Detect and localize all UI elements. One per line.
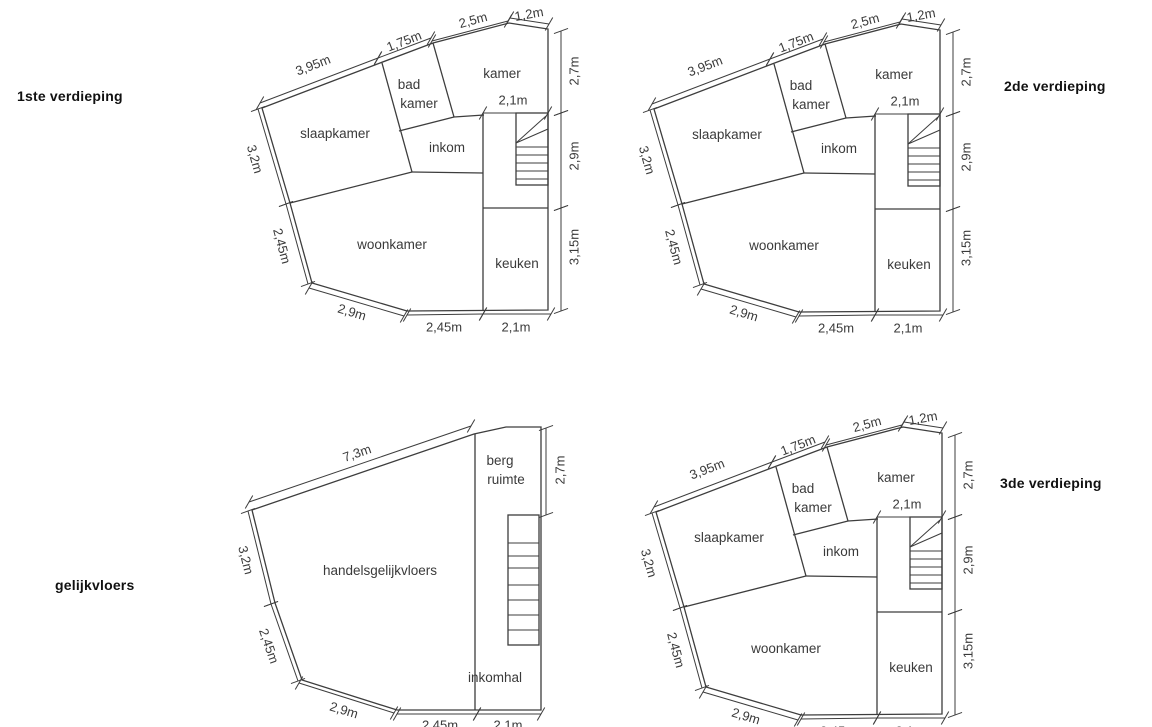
room-label: kamer xyxy=(875,67,913,82)
dimension-label: 2,45m xyxy=(256,626,282,665)
interior-wall xyxy=(290,172,412,203)
interior-wall xyxy=(806,576,877,577)
dimension: 3,2m xyxy=(636,107,685,207)
dimension: 7,3m xyxy=(245,420,475,509)
staircase xyxy=(508,515,539,645)
room-label: bad xyxy=(790,78,813,93)
staircase xyxy=(516,113,548,185)
dimension-tick xyxy=(467,420,475,433)
dimension-label: 2,1m xyxy=(494,718,523,727)
room-label: slaapkamer xyxy=(692,127,762,142)
dimension-label: 3,2m xyxy=(636,144,658,176)
floorplan-3de-verdieping: 3,95m1,75m2,5m1,2m2,7m2,9m3,15m2,1m2,45m… xyxy=(638,408,976,727)
dimension-label: 2,1m xyxy=(893,497,922,512)
staircase xyxy=(908,114,940,186)
dimension: 3,95m xyxy=(256,52,382,110)
dimension-label: 3,95m xyxy=(687,456,726,483)
dimension: 3,95m xyxy=(650,456,776,514)
interior-wall xyxy=(848,519,878,521)
room-label: berg xyxy=(486,453,513,468)
interior-wall xyxy=(791,118,846,132)
dimension: 3,15m xyxy=(946,206,974,314)
dimension-label: 3,15m xyxy=(961,633,976,669)
floor-label-1ste-verdieping: 1ste verdieping xyxy=(17,88,123,104)
dimension-line xyxy=(249,426,471,502)
dimension-label: 3,2m xyxy=(638,547,660,579)
dimension-label: 3,15m xyxy=(959,230,974,266)
dimension-label: 2,7m xyxy=(567,57,582,86)
dimension-label: 2,1m xyxy=(502,320,531,335)
stair-direction-line xyxy=(516,116,546,143)
room-label: inkom xyxy=(823,544,859,559)
dimension-label: 1,75m xyxy=(778,432,817,459)
dimension-label: 1,2m xyxy=(905,5,936,25)
dimension-label: 2,1m xyxy=(894,321,923,336)
stair-direction-line xyxy=(908,117,938,144)
interior-wall xyxy=(454,115,484,117)
dimension: 3,15m xyxy=(554,205,582,313)
dimension: 2,7m xyxy=(948,432,976,519)
interior-wall xyxy=(804,173,875,174)
dimension-tick xyxy=(245,496,253,509)
stair-direction-line xyxy=(908,130,940,144)
interior-wall xyxy=(399,117,454,131)
dimension: 2,7m xyxy=(946,29,974,116)
dimension-label: 2,45m xyxy=(662,228,686,267)
room-label: inkom xyxy=(821,141,857,156)
room-label: bad xyxy=(398,77,421,92)
dimension-label: 2,7m xyxy=(553,456,568,485)
dimension-label: 1,75m xyxy=(776,29,815,56)
dimension-label: 2,9m xyxy=(959,143,974,172)
dimension-label: 2,9m xyxy=(567,142,582,171)
dimension-label: 2,45m xyxy=(422,718,458,727)
dimension: 2,5m xyxy=(820,10,904,48)
floor-label-gelijkvloers: gelijkvloers xyxy=(55,577,134,593)
dimension-label: 2,1m xyxy=(896,724,925,727)
floorplan-1ste-verdieping: 3,95m1,75m2,5m1,2m2,7m2,9m3,15m2,1m2,45m… xyxy=(244,4,582,334)
dimension-label: 3,2m xyxy=(244,143,266,175)
dimension: 2,9m xyxy=(697,283,800,325)
dimension-label: 3,15m xyxy=(567,229,582,265)
dimension: 3,2m xyxy=(244,106,293,206)
dimension: 3,2m xyxy=(638,510,687,610)
interior-wall xyxy=(793,521,848,535)
interior-wall xyxy=(846,116,876,118)
room-label: kamer xyxy=(400,96,438,111)
dimension-label: 2,45m xyxy=(270,227,294,266)
floor-label-2de-verdieping: 2de verdieping xyxy=(1004,78,1106,94)
room-label: keuken xyxy=(887,257,931,272)
dimension: 2,7m xyxy=(554,28,582,115)
room-label: kamer xyxy=(792,97,830,112)
dimension-label: 2,1m xyxy=(499,93,528,108)
staircase-outline xyxy=(910,517,942,589)
floorplan-2de-verdieping: 3,95m1,75m2,5m1,2m2,7m2,9m3,15m2,1m2,45m… xyxy=(636,5,974,335)
dimension: 2,5m xyxy=(428,9,512,47)
room-label: kamer xyxy=(794,500,832,515)
dimension-label: 2,45m xyxy=(818,321,854,336)
staircase-outline xyxy=(508,515,539,645)
room-label: inkom xyxy=(429,140,465,155)
dimension-tick xyxy=(295,677,303,690)
dimension: 2,1m xyxy=(479,308,555,335)
dimension-line xyxy=(801,718,877,719)
room-label: woonkamer xyxy=(750,641,821,656)
dimension: 2,7m xyxy=(539,425,568,517)
room-label: keuken xyxy=(495,256,539,271)
dimension-label: 1,2m xyxy=(513,4,544,24)
dimension-label: 2,7m xyxy=(961,461,976,490)
dimension: 2,1m xyxy=(871,309,947,336)
dimension-label: 2,7m xyxy=(959,58,974,87)
stair-direction-line xyxy=(910,533,942,547)
room-label: bad xyxy=(792,481,815,496)
room-label: ruimte xyxy=(487,472,525,487)
dimension-label: 2,9m xyxy=(961,546,976,575)
dimension: 3,15m xyxy=(948,609,976,717)
floorplans-drawing: 3,95m1,75m2,5m1,2m2,7m2,9m3,15m2,1m2,45m… xyxy=(0,0,1152,727)
dimension-label: 3,2m xyxy=(235,544,257,576)
dimension-label: 2,45m xyxy=(664,631,688,670)
dimension: 2,9m xyxy=(946,111,974,211)
room-label: slaapkamer xyxy=(300,126,370,141)
room-label: inkomhal xyxy=(468,670,522,685)
floor-label-3de-verdieping: 3de verdieping xyxy=(1000,475,1102,491)
staircase xyxy=(910,517,942,589)
room-label: keuken xyxy=(889,660,933,675)
dimension-line xyxy=(799,315,875,316)
dimension: 2,5m xyxy=(822,413,906,451)
dimension-tick xyxy=(291,678,305,683)
floorplan-gelijkvloers: 7,3m3,2m2,45m2,9m2,45m2,1m2,7mhandelsgel… xyxy=(235,420,567,727)
dimension: 2,9m xyxy=(305,282,408,324)
dimension-label: 2,9m xyxy=(328,699,360,722)
dimension: 2,9m xyxy=(554,110,582,210)
dimension-label: 1,2m xyxy=(907,408,938,428)
stair-direction-line xyxy=(516,129,548,143)
staircase-outline xyxy=(908,114,940,186)
dimension-label: 2,45m xyxy=(426,320,462,335)
interior-wall xyxy=(682,173,804,204)
room-label: woonkamer xyxy=(748,238,819,253)
dimension: 2,45m xyxy=(797,712,881,727)
dimension-label: 1,75m xyxy=(384,28,423,55)
dimension: 2,9m xyxy=(699,686,802,727)
dimension-line xyxy=(407,314,483,315)
dimension: 3,95m xyxy=(648,53,774,111)
staircase-outline xyxy=(516,113,548,185)
dimension: 2,45m xyxy=(256,601,305,683)
room-label: kamer xyxy=(483,66,521,81)
room-label: handelsgelijkvloers xyxy=(323,563,437,578)
dimension-label: 3,95m xyxy=(293,52,332,79)
dimension: 2,9m xyxy=(948,514,976,614)
room-label: kamer xyxy=(877,470,915,485)
room-label: woonkamer xyxy=(356,237,427,252)
dimension-label: 3,95m xyxy=(685,53,724,80)
interior-wall xyxy=(684,576,806,607)
room-label: slaapkamer xyxy=(694,530,764,545)
floorplan-sheet: 3,95m1,75m2,5m1,2m2,7m2,9m3,15m2,1m2,45m… xyxy=(0,0,1152,727)
interior-wall xyxy=(412,172,483,173)
dimension-label: 2,45m xyxy=(820,724,856,727)
stair-direction-line xyxy=(910,520,940,547)
dimension-label: 2,1m xyxy=(891,94,920,109)
